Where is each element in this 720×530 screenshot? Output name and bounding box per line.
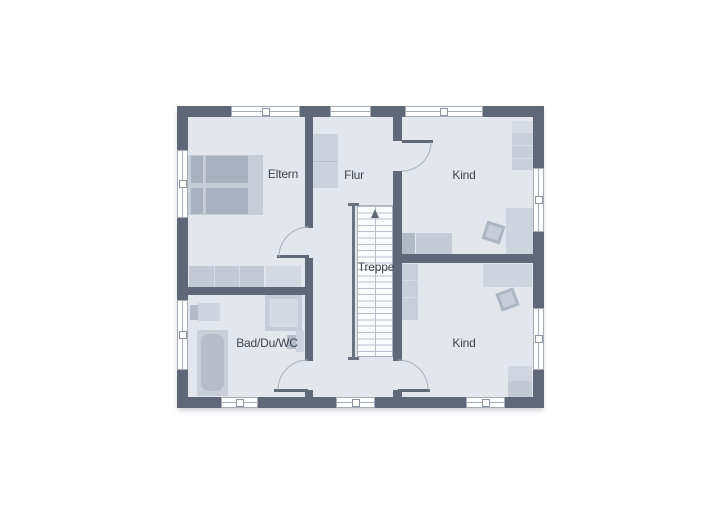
room-label-bad: Bad/Du/WC xyxy=(236,336,298,350)
door-arc-bad xyxy=(278,360,308,390)
room-label-treppe: Treppe xyxy=(358,260,394,274)
room-label-kind-top: Kind xyxy=(452,168,475,182)
stair-up-arrow-icon xyxy=(371,209,379,218)
room-label-kind-bottom: Kind xyxy=(452,336,475,350)
door-arc-eltern xyxy=(279,227,309,257)
plan-linework xyxy=(177,106,544,408)
door-arc-kind-top xyxy=(402,142,431,171)
floor-plan-page: Eltern Flur Kind Treppe Bad/Du/WC Kind xyxy=(0,0,720,530)
room-label-flur: Flur xyxy=(344,168,364,182)
room-label-eltern: Eltern xyxy=(268,167,298,181)
door-arc-kind-bottom xyxy=(398,360,428,390)
floor-plan: Eltern Flur Kind Treppe Bad/Du/WC Kind xyxy=(177,106,544,408)
